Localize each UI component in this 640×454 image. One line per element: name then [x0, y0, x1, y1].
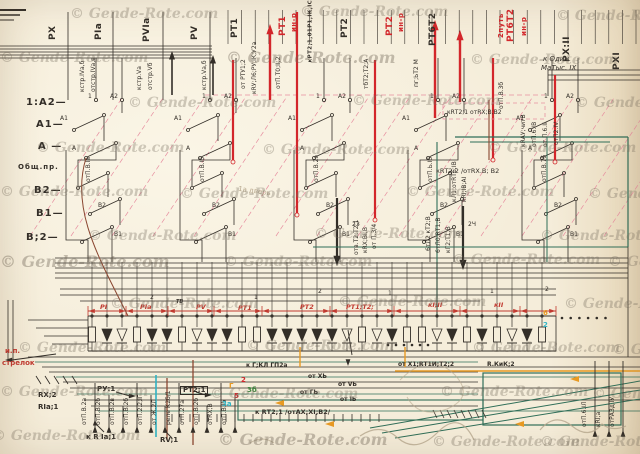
colored-mark: 2 [241, 377, 246, 384]
terminal-number: А2 [110, 94, 118, 100]
mid-note-label: к Один. [543, 56, 571, 63]
contact-terminal [553, 160, 557, 164]
wire [311, 228, 339, 241]
band-count-label: 2 [150, 295, 154, 301]
arrow-icon [89, 309, 95, 313]
diode-band-label: ТВ [176, 300, 183, 305]
tiny-wire-label: отП.В.2а [82, 398, 88, 425]
tiny-wire-label: отП.27а [180, 400, 186, 425]
tiny-wire-label: кRХ;ВI;В [363, 227, 369, 253]
resistor-icon [254, 327, 261, 342]
contact-terminal [570, 317, 572, 319]
diode-icon [477, 329, 487, 341]
tiny-wire-label: отП.6.IЛ [582, 401, 588, 427]
contact-label: А [414, 146, 418, 152]
bottom-wire-label: от Х1;RТ1И;Т2;2 [398, 362, 454, 368]
arrow-icon [215, 309, 221, 313]
contact-label: В2 [212, 203, 220, 209]
contact-terminal [561, 317, 563, 319]
wire [421, 174, 449, 187]
diode-icon [162, 329, 172, 341]
tiny-wire-label: отстр.IVа,в [91, 57, 97, 92]
resistor-icon [239, 327, 246, 342]
diode-icon [312, 329, 322, 341]
mid-note-label: МаТыс. IХ [541, 65, 576, 72]
diode-icon [282, 329, 292, 341]
contact-terminal [347, 198, 350, 201]
contact-label: А [300, 146, 304, 152]
pencil-scribble [360, 423, 474, 445]
arrow-icon [453, 309, 459, 313]
resistor-icon [359, 327, 366, 342]
tiny-wire-label: тбТ2;Т2;А [364, 59, 370, 89]
arrow-icon [346, 359, 351, 366]
tiny-wire-label: кЛ1;отRТ6;IВ [452, 161, 458, 202]
relay-column-label: ин-р [521, 17, 528, 36]
bottom-wire-label: и.п. [5, 348, 20, 355]
contact-label: В2 [554, 203, 562, 209]
left-terminal-label: В1— [36, 209, 64, 219]
contact-terminal [462, 98, 465, 101]
wire [112, 98, 204, 236]
contact-terminal [403, 344, 405, 346]
terminal-number: А2 [338, 94, 346, 100]
diode-icon [147, 329, 157, 341]
contact-terminal [457, 142, 460, 145]
wire [36, 376, 41, 384]
bottom-wire-label: к RТ2;1 /отАХ;ХI;В2/ [255, 409, 330, 416]
wire [193, 174, 221, 187]
arrow-icon [135, 426, 140, 433]
tiny-wire-label: отстр.Vб [148, 63, 154, 90]
wire [192, 145, 230, 186]
bottom-wire-label: RIа;1 [38, 404, 58, 411]
contact-terminal [339, 226, 342, 229]
tiny-wire-label: кГ2;Т1;В [446, 226, 452, 253]
arrow-icon [323, 309, 329, 313]
contact-terminal [217, 114, 220, 117]
band-count-label: 1 [388, 291, 392, 297]
terminal-number: 1 [88, 94, 92, 100]
arrow-icon [191, 426, 196, 433]
contact-terminal [579, 317, 581, 319]
contact-terminal [107, 172, 110, 175]
contact-terminal [373, 218, 377, 222]
contact-label: В1 [342, 232, 350, 238]
bottom-wire-label: РУ:1 [97, 386, 115, 393]
tiny-wire-label: от П.3/4 [372, 224, 378, 249]
diode-icon [372, 329, 382, 341]
wire [87, 144, 115, 157]
contact-label: В2 [326, 203, 334, 209]
contact-label: В2 [98, 203, 106, 209]
contact-terminal [119, 198, 122, 201]
arrow-icon [169, 309, 175, 313]
arrow-icon [219, 426, 224, 433]
tiny-wire-label: кстр.Vа [137, 66, 143, 90]
relay-column-label: РVIа [143, 17, 152, 42]
tiny-wire-label: отв.Т2;Т2;1 [354, 220, 360, 255]
contact-label: А1 [402, 116, 410, 122]
scanned-relay-schematic: РХРIаРVIаРVРТ1РТ1ин-ркРТ2;1,01Р1,IК,IСРТ… [0, 0, 640, 454]
tiny-wire-label: отП.В.Iб [200, 157, 206, 182]
arrow-icon [210, 55, 216, 64]
contact-terminal [411, 344, 413, 346]
diode-icon [102, 329, 112, 341]
diode-icon [207, 329, 217, 341]
contact-label: А1 [516, 116, 524, 122]
tiny-wire-label: от Ж.2Л [152, 399, 158, 425]
terminal-number: 1 [316, 94, 320, 100]
contact-label: А [72, 146, 76, 152]
relay-column-label: РТ6Т2 [507, 9, 516, 42]
diode-band-label: РI [100, 304, 107, 311]
band-count-label: 1 [254, 295, 258, 301]
bottom-wire-label: к R Iа;1 [86, 434, 116, 441]
arrow-icon [263, 309, 269, 313]
arrow-icon [459, 260, 466, 270]
resistor-icon [404, 327, 411, 342]
contact-terminal [225, 226, 228, 229]
wire [201, 144, 229, 157]
tiny-wire-label: отП.Т0;II;2 [276, 57, 282, 89]
wire [189, 116, 217, 129]
arrow-icon [331, 309, 337, 313]
tiny-wire-label: отП.В.Iа [86, 157, 92, 182]
relay-column-label: РТ1 [279, 16, 288, 36]
wire [303, 116, 331, 129]
relay-column-label: 2путь [498, 13, 505, 38]
tiny-wire-label: отП2.IV [554, 122, 560, 145]
contact-label: А1 [288, 116, 296, 122]
diode-icon [447, 329, 457, 341]
arrow-icon [607, 430, 612, 437]
contact-terminal [111, 226, 114, 229]
contact-terminal [453, 226, 456, 229]
contact-label: В2 [440, 203, 448, 209]
contact-terminal [550, 98, 553, 101]
arrow-icon [621, 430, 626, 437]
wire [534, 145, 572, 186]
terminal-number: А2 [452, 94, 460, 100]
terminal-number: 1 [544, 94, 548, 100]
resistor-icon [494, 327, 501, 342]
arrow-icon [325, 421, 334, 427]
diode-icon [192, 329, 202, 341]
left-terminal-label: Общ.пр. [18, 164, 59, 171]
tiny-wire-label: отП.В.2а [314, 155, 320, 182]
arrow-icon [205, 426, 210, 433]
tiny-wire-label: отП.В.7б [542, 155, 548, 182]
contact-label: А [186, 146, 190, 152]
tiny-wire-label: кстр.IVа,б [80, 61, 86, 92]
wire [306, 145, 344, 186]
resistor-icon [179, 327, 186, 342]
contact-terminal [559, 114, 562, 117]
terminal-number: 1 [202, 94, 206, 100]
contact-terminal [343, 142, 346, 145]
contact-label: В1 [114, 232, 122, 238]
diode-icon [267, 329, 277, 341]
diode-icon [432, 329, 442, 341]
mid-note-label: кRТ2;1 отRХ;В;В2 [447, 110, 502, 116]
left-terminal-label: А — [38, 142, 62, 152]
arrow-icon [513, 309, 519, 313]
contact-label: А1 [60, 116, 68, 122]
wire [96, 424, 104, 432]
relay-column-label: ин-р [398, 13, 405, 32]
wire [75, 116, 103, 129]
pencil-scribble [250, 439, 274, 443]
band-count-label: 1 [490, 289, 494, 295]
relay-column-label: РIа [95, 23, 104, 40]
band-count-label: 2 [545, 287, 549, 293]
wire [317, 98, 409, 236]
terminal-number: 1 [430, 94, 434, 100]
contact-terminal [436, 98, 439, 101]
diode-band-label: РТ1 [238, 305, 252, 312]
resistor-icon [419, 327, 426, 342]
wire [45, 376, 50, 384]
diode-band-label: кI;II [428, 302, 442, 309]
wire [395, 399, 640, 438]
diode-icon [327, 329, 337, 341]
bottom-wire-label: стрелок [2, 360, 35, 367]
contact-terminal [395, 344, 397, 346]
mid-note-label: кRТ2:2 /отRХ.В; В2 [436, 168, 499, 175]
bottom-wire-label: от VЬ [338, 382, 357, 388]
arrow-icon [177, 426, 182, 433]
contact-label: В1 [570, 232, 578, 238]
resistor-icon [464, 327, 471, 342]
arrow-icon [266, 24, 273, 34]
contact-terminal [596, 317, 598, 319]
contact-terminal [229, 142, 232, 145]
tiny-wire-label: реле К2б/1 [166, 390, 172, 425]
arrow-icon [161, 309, 167, 313]
arrow-icon [93, 426, 98, 433]
tiny-wire-label: отП.Ь.Iб [428, 157, 434, 182]
tiny-wire-label: отП.В.3б [499, 82, 505, 109]
diode-icon [387, 329, 397, 341]
terminal-number: А2 [566, 94, 574, 100]
tiny-wire-label: 6тЛ2 кТ2;В [426, 216, 432, 251]
diode-icon [342, 329, 352, 341]
diode-band-label: кII [494, 302, 503, 309]
contact-terminal [491, 158, 495, 162]
bottom-wire-label: от ГЬ [300, 390, 318, 396]
diode-icon [222, 329, 232, 341]
arrow-icon [149, 426, 154, 433]
bottom-wire-label: от IЬ [340, 397, 357, 403]
arrow-icon [127, 309, 133, 313]
contact-terminal [576, 98, 579, 101]
resistor-icon [89, 327, 96, 342]
arrow-icon [461, 309, 467, 313]
tiny-wire-label: кRУ;Л6;РУ;IК;У2а [252, 42, 258, 94]
contact-label: А [528, 146, 532, 152]
contact-terminal [348, 98, 351, 101]
tiny-wire-label: от П.6.II [543, 122, 549, 147]
tiny-wire-label: 6тЛ0;RТ1;В [436, 218, 442, 253]
tiny-wire-label: отRХ;В [208, 403, 214, 425]
contact-terminal [115, 142, 118, 145]
tiny-wire-label: пг;ЬТ2 М [414, 59, 420, 87]
contact-terminal [221, 172, 224, 175]
bottom-wire-label: RV;1 [160, 437, 178, 444]
mid-note-label: 2Ч [468, 222, 476, 228]
relay-column-label: РТ2 [386, 16, 395, 36]
diode-icon [117, 329, 127, 341]
arrow-icon [121, 426, 126, 433]
diode-icon [507, 329, 517, 341]
colored-mark: 3б [247, 387, 257, 394]
bottom-wire-label: РТ2;1 [180, 386, 208, 395]
tiny-wire-label: от РТУ1;2 [241, 59, 247, 89]
wire [197, 228, 225, 241]
colored-mark: 3а [222, 401, 232, 408]
contact-terminal [427, 344, 429, 346]
left-terminal-label: В;2— [26, 233, 59, 243]
contact-terminal [575, 198, 578, 201]
diode-band-label: РТ2 [300, 304, 314, 311]
contact-terminal [331, 114, 334, 117]
resistor-icon [539, 327, 546, 342]
contact-terminal [94, 98, 97, 101]
relay-column-label: ин-р [291, 13, 298, 32]
arrow-icon [395, 309, 401, 313]
bottom-wire-label: от ХЬ [308, 374, 327, 380]
tiny-wire-label: отП.6.IВ [532, 122, 538, 147]
tiny-wire-label: отРАЗд.IУ [610, 397, 616, 427]
resistor-icon [134, 327, 141, 342]
bottom-wire-label: RX;2 [38, 392, 56, 399]
colored-mark: 2 [543, 322, 548, 329]
colored-mark: 6 [543, 310, 548, 317]
wire [539, 228, 567, 241]
contact-terminal [231, 160, 235, 164]
contact-terminal [335, 172, 338, 175]
arrow-icon [521, 309, 527, 313]
tiny-wire-label: отП.В.2б [194, 398, 200, 425]
arrow-icon [207, 309, 213, 313]
diode-band-label: РТ1;Т2; [346, 304, 374, 311]
tiny-wire-label: отП.В.2б [96, 398, 102, 425]
contact-terminal [322, 98, 325, 101]
arrow-icon [456, 30, 463, 40]
arrow-icon [333, 256, 340, 266]
diode-icon [297, 329, 307, 341]
arrow-icon [255, 309, 261, 313]
tiny-wire-label: кстр.Vа,б [202, 60, 208, 90]
arrow-icon [233, 426, 238, 433]
relay-column-label: РТ6Т2 [429, 13, 438, 46]
arrow-icon [387, 309, 393, 313]
left-terminal-label: В2— [34, 186, 62, 196]
contact-label: В1 [228, 232, 236, 238]
tiny-wire-label: кRI;IВ;АI [462, 177, 468, 202]
tiny-wire-label: отП.В.2в [110, 398, 116, 425]
relay-column-label: РV [191, 26, 200, 40]
contact-terminal [103, 114, 106, 117]
diode-band-label: РV [196, 304, 206, 311]
contact-terminal [605, 317, 607, 319]
arrow-icon [515, 421, 524, 427]
wire [79, 174, 107, 187]
tiny-wire-label: отП.2.2;IГ [138, 394, 144, 425]
arrow-icon [107, 426, 112, 433]
contact-terminal [587, 317, 589, 319]
contact-label: В1 [456, 232, 464, 238]
contact-terminal [419, 344, 421, 346]
bottom-wire-label: R.КиК;2 [487, 362, 515, 368]
colored-mark: 5 [234, 393, 239, 400]
contact-terminal [295, 213, 299, 217]
relay-column-label: кРТ2;1,01Р1,IК,IС [309, 0, 315, 63]
wire [194, 98, 286, 236]
contact-label: А1 [174, 116, 182, 122]
relay-column-label: РХ [49, 26, 58, 40]
contact-terminal [387, 344, 389, 346]
colored-mark: Г [229, 383, 233, 390]
band-count-label: 2 [318, 289, 322, 295]
relay-column-label: РТ2 [341, 18, 350, 38]
arrow-icon [275, 400, 284, 406]
contact-terminal [234, 98, 237, 101]
tiny-wire-label: отП.В.2б [124, 398, 130, 425]
arrow-icon [549, 309, 555, 313]
diode-icon [522, 329, 532, 341]
bottom-wire-label: к Г;КЛ ГП2а [246, 363, 287, 369]
terminal-number: А2 [224, 94, 232, 100]
wire [307, 174, 335, 187]
wire [83, 228, 111, 241]
left-terminal-label: 1:А2— [26, 98, 67, 108]
relay-column-label: РХI [613, 52, 622, 70]
tiny-wire-label: кRI;а [596, 412, 602, 427]
relay-column-label: РТ1 [231, 18, 240, 38]
diode-band-label: РIа [140, 304, 152, 311]
contact-terminal [233, 198, 236, 201]
